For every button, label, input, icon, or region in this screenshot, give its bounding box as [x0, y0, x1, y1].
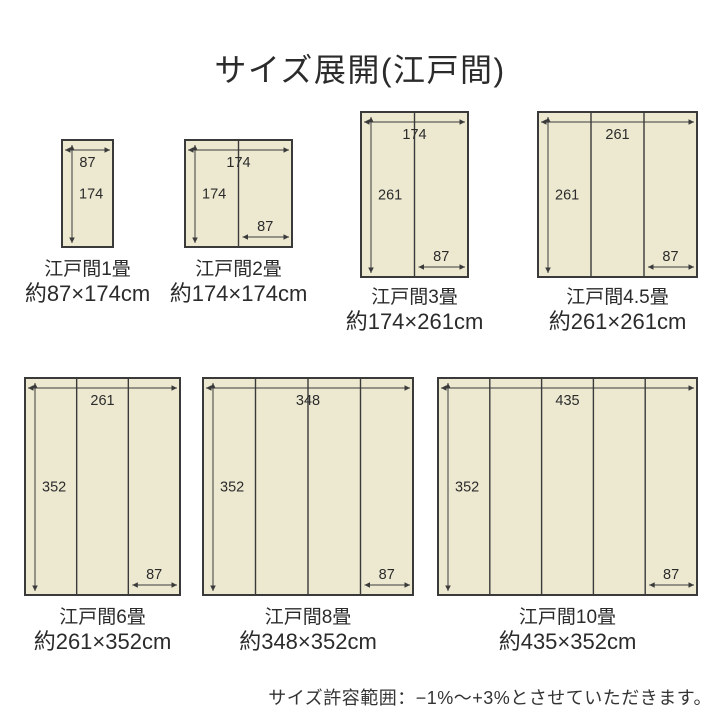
- diagram-edoma-3jo: 17426187 江戸間3畳 約174×261cm: [359, 110, 470, 279]
- diagram-caption: 江戸間10畳 約435×352cm: [499, 606, 637, 654]
- diagram-size: 約174×174cm: [170, 282, 308, 306]
- height-dimension-label: 261: [378, 188, 402, 204]
- tatami-diagram-svg: 17426187: [359, 110, 470, 279]
- width-dimension-label: 261: [90, 393, 114, 409]
- diagram-size: 約261×261cm: [549, 310, 687, 334]
- height-dimension-label: 352: [220, 480, 244, 496]
- diagram-caption: 江戸間2畳 約174×174cm: [170, 258, 308, 306]
- diagram-edoma-10jo: 43535287 江戸間10畳 約435×352cm: [436, 376, 699, 597]
- panel-width-dimension-label: 87: [433, 249, 449, 265]
- diagram-name: 江戸間10畳: [499, 606, 637, 630]
- height-dimension-label: 352: [42, 480, 66, 496]
- width-dimension-label: 435: [555, 393, 579, 409]
- diagram-edoma-8jo: 34835287 江戸間8畳 約348×352cm: [201, 376, 415, 597]
- diagram-edoma-1jo: 87174 江戸間1畳 約87×174cm: [60, 138, 115, 249]
- panel-width-dimension-label: 87: [379, 567, 395, 583]
- panel-width-dimension-label: 87: [146, 567, 162, 583]
- diagram-name: 江戸間6畳: [34, 606, 172, 630]
- tatami-diagram-svg: 26135287: [23, 376, 182, 597]
- diagram-size: 約348×352cm: [239, 630, 377, 654]
- size-chart-page: サイズ展開(江戸間) 87174 江戸間1畳 約87×174cm 1741748…: [0, 0, 720, 720]
- diagram-size: 約174×261cm: [346, 310, 484, 334]
- diagram-caption: 江戸間1畳 約87×174cm: [25, 258, 150, 306]
- tatami-diagram-svg: 26126187: [536, 110, 699, 279]
- panel-width-dimension-label: 87: [662, 249, 678, 265]
- height-dimension-label: 174: [202, 187, 226, 203]
- diagram-edoma-4-5jo: 26126187 江戸間4.5畳 約261×261cm: [536, 110, 699, 279]
- panel-width-dimension-label: 87: [663, 567, 679, 583]
- diagram-name: 江戸間8畳: [239, 606, 377, 630]
- width-dimension-label: 174: [402, 127, 426, 143]
- height-dimension-label: 174: [79, 187, 103, 203]
- diagram-edoma-6jo: 26135287 江戸間6畳 約261×352cm: [23, 376, 182, 597]
- diagram-name: 江戸間4.5畳: [549, 286, 687, 310]
- tatami-diagram-svg: 43535287: [436, 376, 699, 597]
- diagram-caption: 江戸間3畳 約174×261cm: [346, 286, 484, 334]
- diagram-size: 約435×352cm: [499, 630, 637, 654]
- height-dimension-label: 261: [555, 188, 579, 204]
- diagram-edoma-2jo: 17417487 江戸間2畳 約174×174cm: [183, 138, 294, 249]
- tatami-diagram-svg: 34835287: [201, 376, 415, 597]
- size-tolerance-note: サイズ許容範囲：−1%〜+3%とさせていただきます。: [268, 684, 712, 710]
- width-dimension-label: 348: [296, 393, 320, 409]
- diagram-caption: 江戸間8畳 約348×352cm: [239, 606, 377, 654]
- diagram-name: 江戸間1畳: [25, 258, 150, 282]
- tatami-diagram-svg: 17417487: [183, 138, 294, 249]
- tatami-diagram-svg: 87174: [60, 138, 115, 249]
- width-dimension-label: 174: [226, 155, 250, 171]
- diagram-size: 約261×352cm: [34, 630, 172, 654]
- width-dimension-label: 261: [605, 127, 629, 143]
- height-dimension-label: 352: [455, 480, 479, 496]
- width-dimension-label: 87: [79, 155, 95, 171]
- page-title: サイズ展開(江戸間): [0, 45, 720, 91]
- diagram-caption: 江戸間4.5畳 約261×261cm: [549, 286, 687, 334]
- diagram-name: 江戸間2畳: [170, 258, 308, 282]
- diagram-caption: 江戸間6畳 約261×352cm: [34, 606, 172, 654]
- diagram-size: 約87×174cm: [25, 282, 150, 306]
- diagram-name: 江戸間3畳: [346, 286, 484, 310]
- panel-width-dimension-label: 87: [257, 219, 273, 235]
